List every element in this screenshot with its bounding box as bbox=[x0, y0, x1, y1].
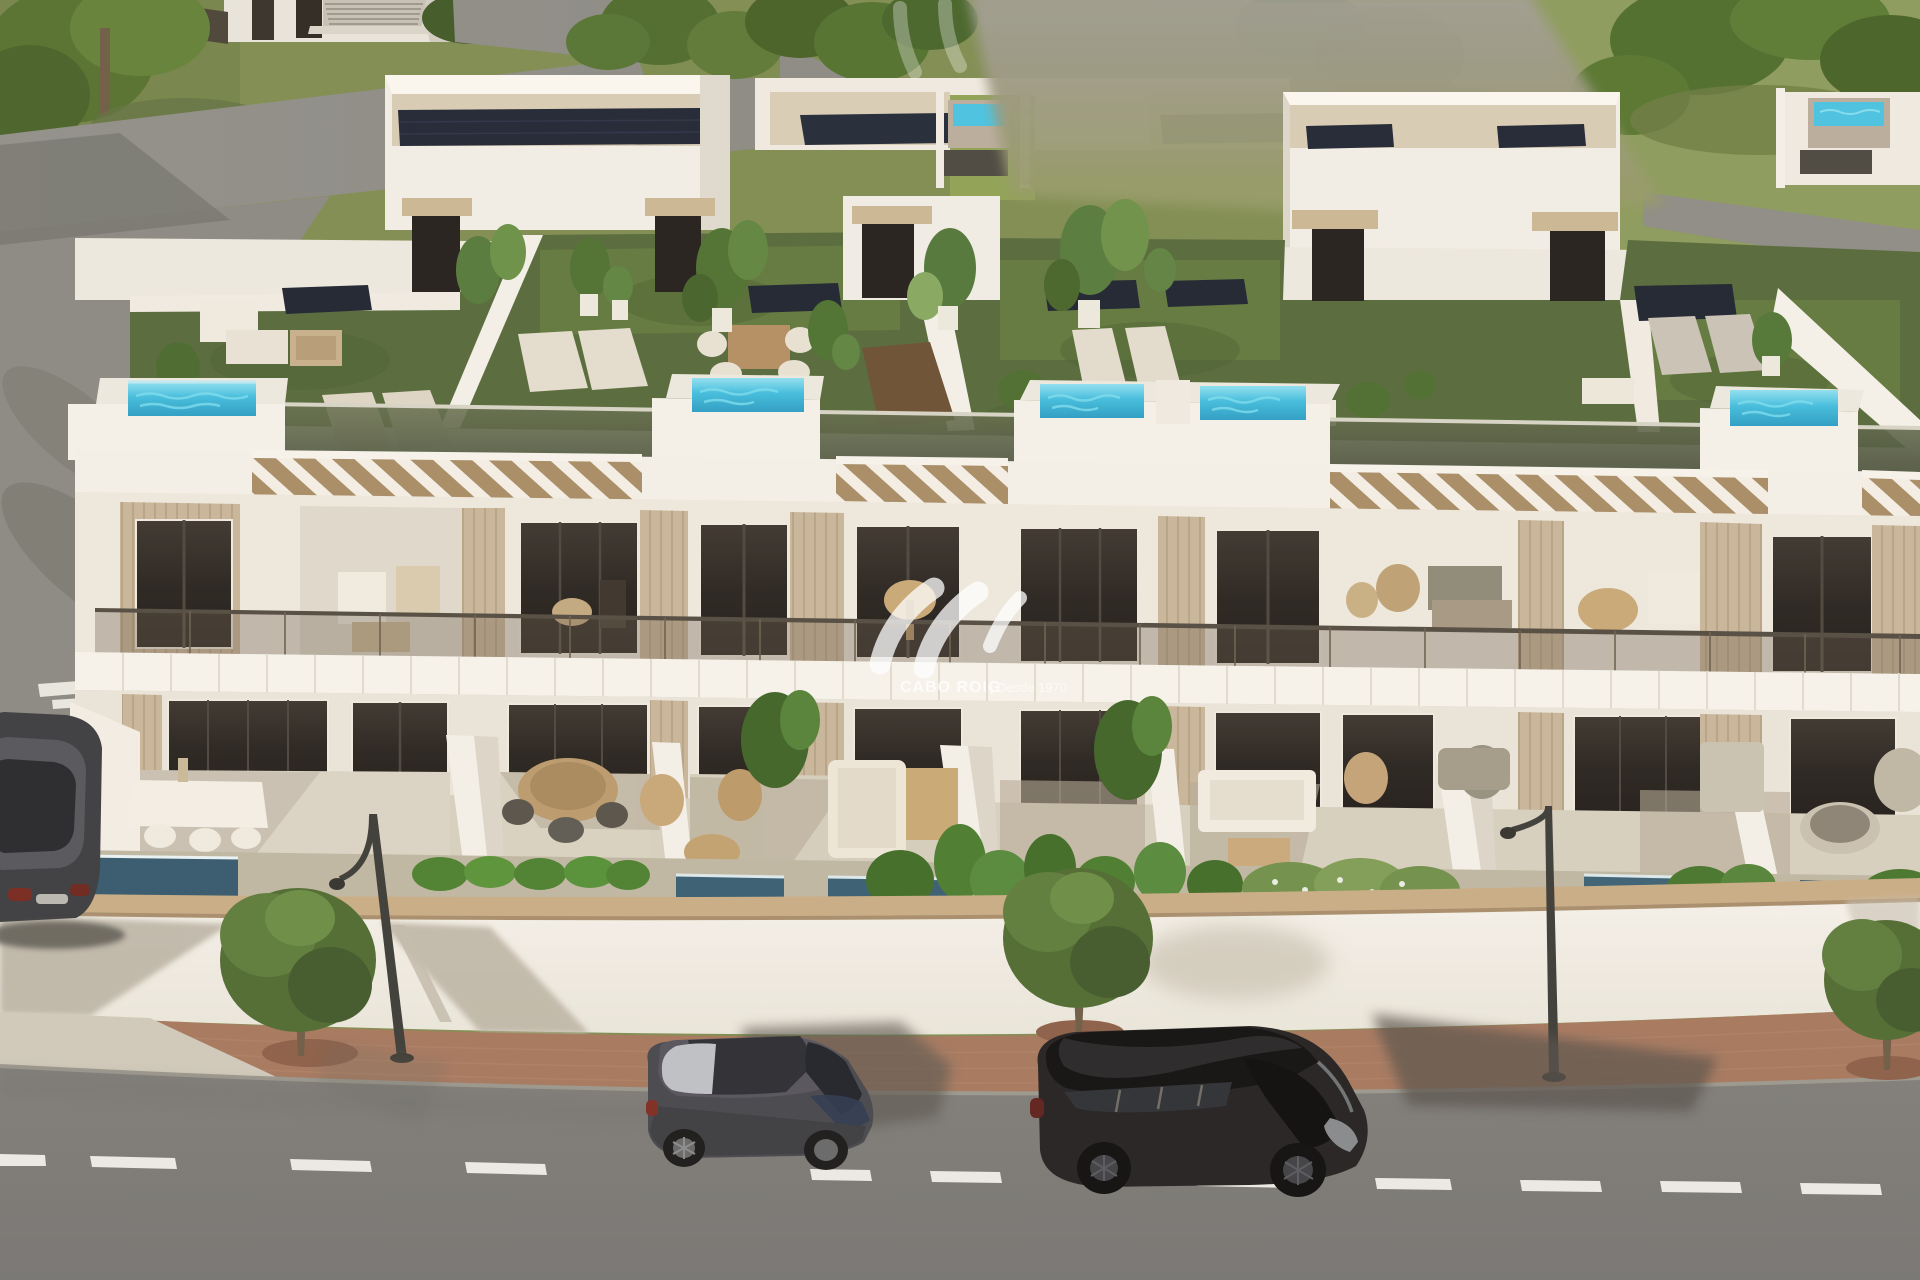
svg-text:CABO ROIG: CABO ROIG bbox=[900, 679, 1001, 696]
svg-text:| Desde 1970: | Desde 1970 bbox=[990, 680, 1067, 695]
